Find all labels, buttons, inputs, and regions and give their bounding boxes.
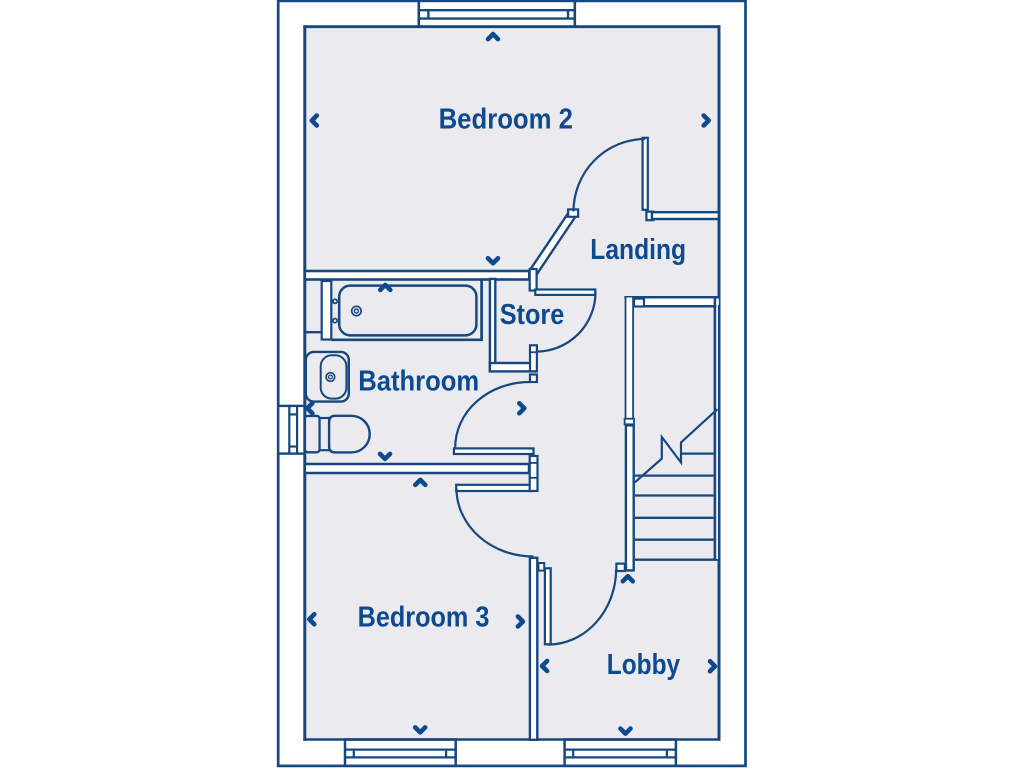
svg-text:Landing: Landing	[590, 234, 686, 266]
svg-text:Lobby: Lobby	[607, 649, 680, 681]
svg-text:Bathroom: Bathroom	[358, 366, 479, 398]
svg-text:Bedroom 3: Bedroom 3	[358, 602, 490, 634]
svg-text:Bedroom 2: Bedroom 2	[439, 104, 573, 136]
svg-text:Store: Store	[500, 299, 565, 331]
